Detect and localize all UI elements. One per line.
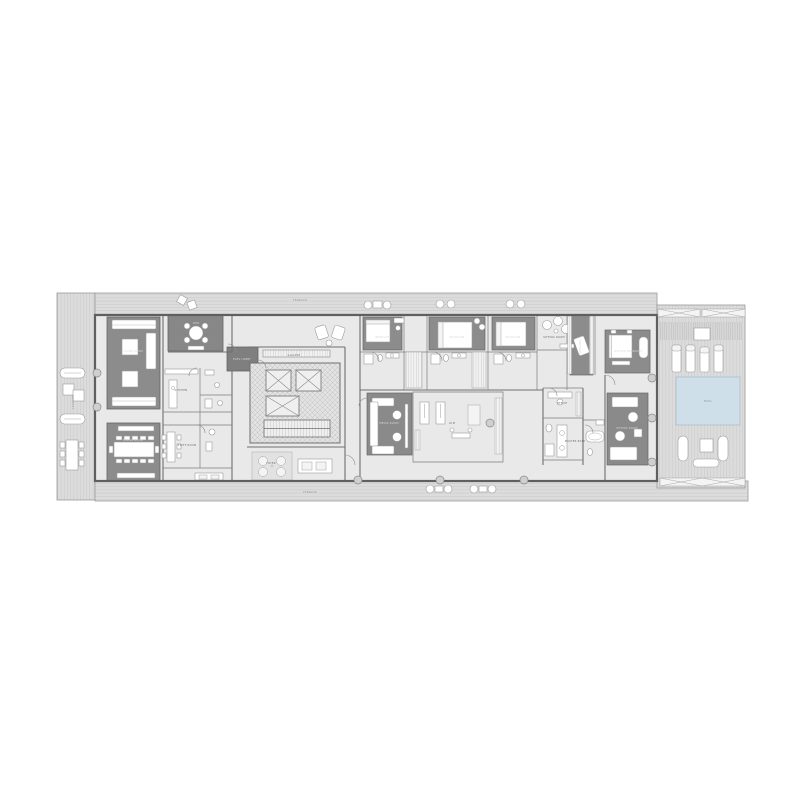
label-elevator-lobby: ELEV LOBBY	[233, 357, 251, 361]
terrace-bottom	[95, 481, 748, 501]
label-terrace-left: TERRACE	[71, 395, 75, 410]
elevator-core	[250, 363, 340, 443]
label-media-room: MEDIA ROOM	[379, 421, 398, 425]
floor-plan-drawing: LIVING ROOM DINING ROOM DEN ELEV LOBBY K…	[0, 0, 800, 800]
label-pool: POOL	[704, 399, 713, 403]
label-foyer: FOYER	[266, 461, 275, 465]
label-kitchen: KITCHEN	[175, 388, 188, 392]
label-bedroom-1: BEDROOM	[376, 335, 391, 339]
label-dining-room: DINING ROOM	[123, 438, 144, 442]
label-master-bath: MASTER BATH	[565, 439, 586, 443]
label-bedroom-2: BEDROOM	[450, 335, 465, 339]
floor-plan-page: LIVING ROOM DINING ROOM DEN ELEV LOBBY K…	[0, 0, 800, 800]
label-master-bedroom: MASTER BEDROOM	[614, 349, 642, 353]
label-terrace-bottom: TERRACE	[302, 490, 317, 494]
label-dressing: DRESSING	[578, 339, 582, 354]
label-den: DEN	[193, 321, 199, 325]
label-office: OFFICE	[557, 401, 568, 405]
label-master-sitting: SITTING ROOM	[616, 426, 638, 430]
label-sitting-room: SITTING ROOM	[543, 335, 565, 339]
label-bedroom-3: BEDROOM	[506, 335, 521, 339]
label-terrace-top: TERRACE	[292, 298, 307, 302]
label-staff-room: STAFF ROOM	[178, 443, 197, 447]
label-living-room: LIVING ROOM	[123, 349, 143, 353]
label-gallery: GALLERY	[288, 353, 301, 357]
label-gym: GYM	[449, 421, 455, 425]
